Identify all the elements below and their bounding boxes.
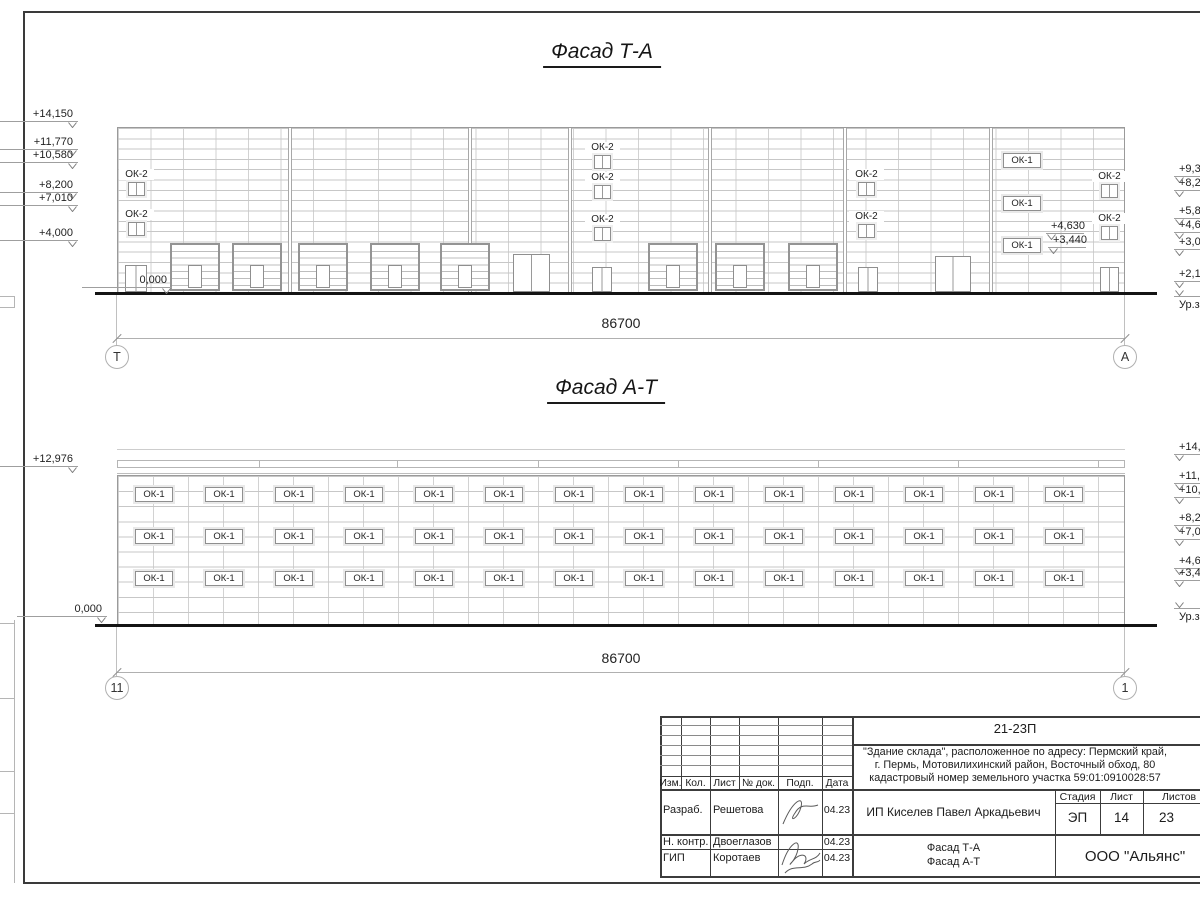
level-text: +4,630 — [1179, 219, 1200, 231]
window-ok1: ОК-1 — [485, 571, 523, 586]
window-ok2 — [128, 222, 145, 236]
wicket-door — [250, 265, 264, 288]
level-text: +9,390 — [1179, 163, 1200, 175]
window-ok2 — [594, 155, 611, 169]
window-ok1: ОК-1 — [835, 571, 873, 586]
margin-line — [14, 296, 15, 308]
garage-door — [170, 243, 220, 291]
window-label: ОК-2 — [119, 169, 154, 180]
project-address-line1: "Здание склада", расположенное по адресу… — [852, 746, 1178, 758]
sheet-label: Лист — [1100, 791, 1143, 803]
window-label: ОК-2 — [1092, 213, 1127, 224]
window-ok1: ОК-1 — [275, 529, 313, 544]
level-mark: +11,770 — [1174, 470, 1200, 484]
level-mark: +5,820 — [1174, 205, 1200, 219]
window-ok1: ОК-1 — [135, 571, 173, 586]
window-label: ОК-2 — [119, 209, 154, 220]
col-header-izm: Изм. — [659, 778, 682, 789]
level-text: +2,100 — [1179, 268, 1200, 280]
level-text: +11,770 — [1179, 470, 1200, 482]
level-mark: +3,440 — [1048, 234, 1086, 248]
row-name: Коротаев — [713, 852, 761, 864]
parapet-divider — [678, 460, 679, 468]
window-ok1: ОК-1 — [205, 529, 243, 544]
parapet-divider — [259, 460, 260, 468]
window-ok1: ОК-1 — [485, 529, 523, 544]
axis-bubble: 11 — [105, 676, 129, 700]
window-ok1: ОК-1 — [1003, 196, 1041, 211]
stage-label: Стадия — [1055, 791, 1100, 803]
level-text: +4,000 — [39, 227, 73, 239]
level-mark: +10,580 — [0, 149, 78, 163]
window-ok1: ОК-1 — [765, 529, 803, 544]
margin-line — [0, 296, 14, 297]
margin-line — [0, 698, 14, 699]
window-ok1: ОК-1 — [555, 529, 593, 544]
facade2-parapet-line — [117, 473, 1125, 474]
window-ok1: ОК-1 — [345, 487, 383, 502]
level-check-icon — [68, 163, 77, 169]
wicket-door — [666, 265, 680, 288]
window-label: ОК-2 — [849, 169, 884, 180]
window-ok2 — [858, 182, 875, 196]
window-ok2 — [1101, 184, 1118, 198]
column-line — [568, 128, 572, 292]
parapet-divider — [397, 460, 398, 468]
col-header-list: Лист — [710, 778, 739, 789]
window-label: ОК-2 — [585, 142, 620, 153]
column-line — [288, 128, 292, 292]
window-ok1: ОК-1 — [1045, 571, 1083, 586]
window-ok1: ОК-1 — [835, 529, 873, 544]
window-ok1: ОК-1 — [905, 487, 943, 502]
level-text: +10,580 — [33, 149, 73, 161]
signature — [779, 792, 821, 832]
window-ok1: ОК-1 — [275, 487, 313, 502]
wicket-door — [733, 265, 747, 288]
level-text: +11,770 — [34, 136, 73, 148]
dimension-line — [117, 672, 1125, 673]
level-check-icon — [1175, 191, 1184, 197]
window-label: ОК-2 — [1092, 171, 1127, 182]
sheets-label: Листов — [1162, 791, 1196, 803]
margin-line — [14, 620, 15, 883]
level-text: +8,200 — [39, 179, 73, 191]
level-mark: +4,000 — [0, 227, 78, 241]
frame-top — [23, 11, 1200, 13]
window-ok2 — [1101, 226, 1118, 240]
level-text: +8,200 — [1179, 512, 1200, 524]
level-text: +4,630 — [1179, 555, 1200, 567]
parapet-divider — [818, 460, 819, 468]
column-line — [708, 128, 712, 292]
wicket-door — [806, 265, 820, 288]
col-header-kol: Кол. — [681, 778, 710, 789]
garage-door — [298, 243, 348, 291]
stage-value: ЭП — [1055, 810, 1100, 825]
window-ok1: ОК-1 — [1003, 153, 1041, 168]
window-ok1: ОК-1 — [345, 529, 383, 544]
window-ok1: ОК-1 — [975, 487, 1013, 502]
level-mark: Ур.земли — [1174, 296, 1200, 311]
level-mark: +8,200 — [1174, 177, 1200, 191]
level-check-icon — [1175, 581, 1184, 587]
level-text: +14,150 — [33, 108, 73, 120]
row-role: ГИП — [663, 852, 685, 864]
level-check-icon — [68, 122, 77, 128]
col-header-data: Дата — [822, 778, 852, 789]
tb-line — [710, 716, 711, 878]
level-text: +3,000 — [1179, 236, 1200, 248]
drawing-sheet: Фасад Т-А 86700 Фасад А-Т 86700 21-23П "… — [0, 0, 1200, 900]
window-ok1: ОК-1 — [345, 571, 383, 586]
window-ok1: ОК-1 — [905, 571, 943, 586]
window-ok2 — [594, 227, 611, 241]
level-check-icon — [1175, 290, 1184, 296]
level-text: +7,010 — [39, 192, 73, 204]
window-ok1: ОК-1 — [1045, 529, 1083, 544]
sheets-total: 23 — [1143, 810, 1190, 825]
window-ok2 — [128, 182, 145, 196]
garage-door — [370, 243, 420, 291]
project-code: 21-23П — [852, 721, 1178, 736]
level-mark: +8,200 — [0, 179, 78, 193]
level-mark: +7,010 — [1174, 526, 1200, 540]
axis-bubble: Т — [105, 345, 129, 369]
level-check-icon — [1049, 248, 1058, 254]
level-mark: +9,390 — [1174, 163, 1200, 177]
garage-door — [440, 243, 490, 291]
window-ok1: ОК-1 — [975, 529, 1013, 544]
window-ok2 — [858, 224, 875, 238]
facade2-title: Фасад А-Т — [547, 376, 665, 404]
window-ok1: ОК-1 — [1045, 487, 1083, 502]
window-ok1: ОК-1 — [625, 529, 663, 544]
window-label: ОК-2 — [849, 211, 884, 222]
window-ok1: ОК-1 — [415, 529, 453, 544]
project-address-line2: г. Пермь, Мотовилихинский район, Восточн… — [852, 759, 1178, 771]
window-ok1: ОК-1 — [765, 487, 803, 502]
facade1-ground-line — [95, 292, 1157, 295]
entry-door — [592, 267, 612, 292]
column-line — [843, 128, 847, 292]
level-text: +8,200 — [1179, 177, 1200, 189]
window-ok1: ОК-1 — [765, 571, 803, 586]
window-ok2 — [594, 185, 611, 199]
level-mark: +7,010 — [0, 192, 78, 206]
window-ok1: ОК-1 — [625, 487, 663, 502]
row-name: Двоеглазов — [713, 836, 771, 848]
window-ok1: ОК-1 — [1003, 238, 1041, 253]
axis-bubble: 1 — [1113, 676, 1137, 700]
margin-line — [0, 771, 14, 772]
tb-line — [660, 849, 852, 850]
facade2-roof-line — [117, 449, 1125, 450]
facade2-ground-line — [95, 624, 1157, 627]
level-mark: +3,000 — [1174, 236, 1200, 250]
level-text: Ур.земли — [1179, 299, 1200, 311]
garage-door — [648, 243, 698, 291]
level-mark: +12,976 — [0, 453, 78, 467]
level-mark: +4,630 — [1174, 219, 1200, 233]
level-check-icon — [1175, 540, 1184, 546]
garage-door — [232, 243, 282, 291]
facade1-dimension: 86700 — [590, 315, 652, 331]
wicket-door — [188, 265, 202, 288]
level-mark: +11,770 — [0, 136, 78, 150]
tb-line — [660, 776, 852, 777]
window-label: ОК-2 — [585, 214, 620, 225]
doc-title-line2: Фасад А-Т — [852, 856, 1055, 868]
double-door — [935, 256, 971, 292]
window-ok1: ОК-1 — [205, 487, 243, 502]
row-name: Решетова — [713, 804, 763, 816]
window-ok1: ОК-1 — [275, 571, 313, 586]
margin-line — [0, 307, 14, 308]
level-text: +4,630 — [1051, 220, 1085, 232]
level-check-icon — [1175, 250, 1184, 256]
level-text: +14,150 — [1179, 441, 1200, 453]
window-ok1: ОК-1 — [835, 487, 873, 502]
parapet-divider — [538, 460, 539, 468]
row-date: 04.23 — [822, 836, 852, 848]
facade1-title: Фасад Т-А — [543, 40, 661, 68]
level-check-icon — [1175, 602, 1184, 608]
level-text: +3,440 — [1179, 567, 1200, 579]
frame-bottom — [23, 882, 1200, 884]
window-ok1: ОК-1 — [695, 487, 733, 502]
tb-line — [660, 725, 852, 726]
level-mark: +4,630 — [1046, 220, 1084, 234]
tb-line — [660, 735, 852, 736]
level-mark: 0,000 — [17, 603, 107, 617]
entry-door — [1100, 267, 1119, 292]
level-text: Ур.земли — [1179, 611, 1200, 623]
garage-door — [788, 243, 838, 291]
level-mark: +10,580 — [1174, 484, 1200, 498]
doc-title-line1: Фасад Т-А — [852, 842, 1055, 854]
window-ok1: ОК-1 — [135, 529, 173, 544]
parapet-divider — [958, 460, 959, 468]
level-text: +10,580 — [1179, 484, 1200, 496]
parapet-divider — [1098, 460, 1099, 468]
wicket-door — [458, 265, 472, 288]
level-mark: 0,000 — [82, 274, 172, 288]
column-line — [989, 128, 993, 292]
company-name: ООО "Альянс" — [1055, 848, 1200, 865]
level-text: +7,010 — [1179, 526, 1200, 538]
row-role: Н. контр. — [663, 836, 708, 848]
level-mark: +14,150 — [1174, 441, 1200, 455]
window-ok1: ОК-1 — [555, 571, 593, 586]
window-ok1: ОК-1 — [415, 487, 453, 502]
level-check-icon — [162, 288, 171, 294]
level-text: 0,000 — [74, 603, 102, 615]
row-role: Разраб. — [663, 804, 703, 816]
garage-door — [715, 243, 765, 291]
facade2-dimension: 86700 — [590, 650, 652, 666]
tb-line — [660, 745, 852, 746]
window-ok1: ОК-1 — [695, 529, 733, 544]
window-ok1: ОК-1 — [485, 487, 523, 502]
level-text: +12,976 — [33, 453, 73, 465]
level-check-icon — [1175, 498, 1184, 504]
level-mark: +3,440 — [1174, 567, 1200, 581]
sheet-number: 14 — [1100, 810, 1143, 825]
level-check-icon — [1175, 455, 1184, 461]
tb-line — [660, 755, 852, 756]
col-header-podp: Подп. — [778, 778, 822, 789]
window-ok1: ОК-1 — [205, 571, 243, 586]
level-mark: +8,200 — [1174, 512, 1200, 526]
tb-line — [660, 765, 852, 766]
level-check-icon — [1175, 282, 1184, 288]
level-check-icon — [68, 206, 77, 212]
window-ok1: ОК-1 — [905, 529, 943, 544]
row-date: 04.23 — [822, 852, 852, 864]
window-ok1: ОК-1 — [555, 487, 593, 502]
wicket-door — [388, 265, 402, 288]
level-text: +3,440 — [1053, 234, 1087, 246]
level-check-icon — [68, 241, 77, 247]
window-ok1: ОК-1 — [415, 571, 453, 586]
level-check-icon — [97, 617, 106, 623]
margin-line — [0, 623, 14, 624]
window-ok1: ОК-1 — [135, 487, 173, 502]
level-text: 0,000 — [139, 274, 167, 286]
dimension-line — [117, 338, 1125, 339]
row-date: 04.23 — [822, 804, 852, 816]
wicket-door — [316, 265, 330, 288]
double-door — [513, 254, 550, 292]
margin-line — [0, 813, 14, 814]
col-header-ndok: № док. — [739, 778, 778, 789]
entry-door — [858, 267, 878, 292]
window-ok1: ОК-1 — [695, 571, 733, 586]
signature — [779, 831, 822, 877]
window-ok1: ОК-1 — [625, 571, 663, 586]
tb-line — [1055, 803, 1200, 804]
level-mark: +2,100 — [1174, 268, 1200, 282]
project-address-line3: кадастровый номер земельного участка 59:… — [852, 772, 1178, 784]
level-mark: +14,150 — [0, 108, 78, 122]
level-text: +5,820 — [1179, 205, 1200, 217]
axis-bubble: А — [1113, 345, 1137, 369]
facade2-parapet — [117, 460, 1125, 468]
level-mark: Ур.земли — [1174, 608, 1200, 623]
window-label: ОК-2 — [585, 172, 620, 183]
client-name: ИП Киселев Павел Аркадьевич — [852, 805, 1055, 819]
window-ok1: ОК-1 — [975, 571, 1013, 586]
level-check-icon — [68, 467, 77, 473]
facade2-building — [117, 475, 1125, 626]
